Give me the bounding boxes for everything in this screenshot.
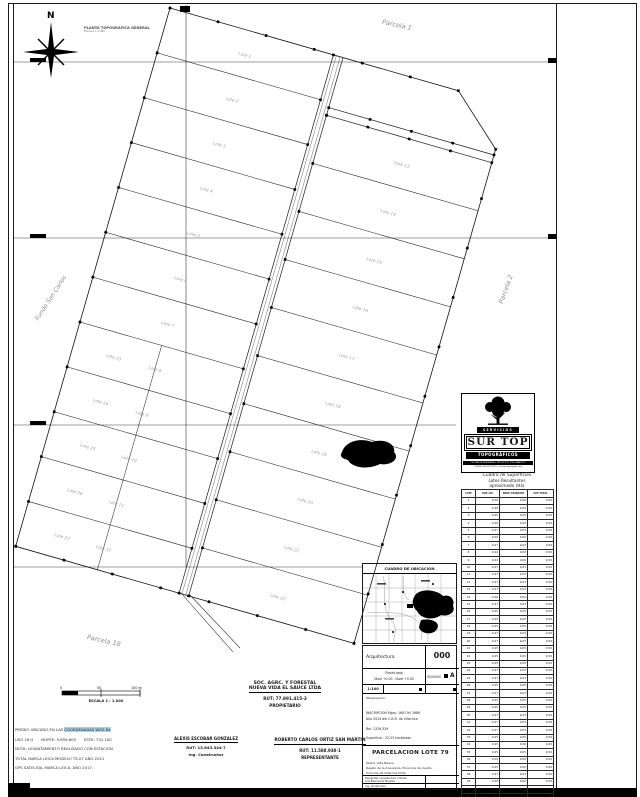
surface-table-row: 310.470.030.50 <box>462 719 554 726</box>
location-inset-title: CUADRO DE UBICACION <box>363 564 456 574</box>
lot-label: Lote 22 <box>270 592 287 601</box>
title-block: Arquitectura 000 Planta baja Nivel +0.00… <box>362 645 457 790</box>
titleblock-row-observacion: Observación: INSCRIPCION Fojas: 1691 Nº … <box>363 693 459 745</box>
logo-servicios: SERVICIOS <box>477 427 519 433</box>
titleblock-row-escala: 1:100 <box>363 684 459 693</box>
signer1-name: ALEXIS ESCOBAR GONZALEZ <box>174 736 238 743</box>
sector-value: Sector Vida Nueva <box>366 761 394 765</box>
scale-zero: 0 <box>60 686 62 690</box>
lot-label: Lote 19 <box>311 448 328 457</box>
plan-title-block: PLANTA TOPOGRÁFICA GENERAL ESCALA 1:1.00… <box>84 26 164 33</box>
titleblock-row-discipline: Arquitectura 000 <box>363 646 459 668</box>
surface-col-header: SUP TOTAL <box>528 490 554 498</box>
escala-mark-1 <box>419 688 422 691</box>
logo-topograficos: TOPOGRÁFICOS <box>466 452 530 459</box>
logo-line2: CORREO ELECTRONICO: surtop.ltda@gmail.co… <box>462 466 534 468</box>
location-inset-box: CUADRO DE UBICACION <box>362 563 457 644</box>
note-este: ESTE: 732.100 <box>84 737 112 742</box>
compass-star <box>23 22 79 78</box>
north-letter: N <box>47 11 55 21</box>
surface-table-row: 20.480.020.50 <box>462 505 554 512</box>
titleblock-row-credit1: Topografía / Arquitectura / Diseño Luis … <box>363 775 459 783</box>
owner-block: SOC. AGRC. Y FORESTAL NUEVA VIDA EL SAUC… <box>210 681 360 708</box>
plan-number: 000 <box>426 651 458 660</box>
lot-label: Lote 9 <box>135 410 149 419</box>
surface-col-header: SERV. TRANSITO <box>500 490 528 498</box>
lot-label: Lote 12 <box>95 544 112 553</box>
lot-label: Lote 16 <box>352 304 369 313</box>
surface-col-header: LOTE <box>462 490 476 498</box>
lot-label: Lote 24 <box>92 397 109 406</box>
escala-value: 1:100 <box>363 687 383 691</box>
surface-table-row: 240.470.030.50 <box>462 667 554 674</box>
pond-blob <box>341 440 396 467</box>
surtop-logo-box: SERVICIOS SUR TOP TOPOGRÁFICOS OFICINA D… <box>461 393 535 473</box>
surface-table-row: 100.470.030.50 <box>462 564 554 571</box>
surface-table-panel: Cuadro de Superficies Lotes Resultantes … <box>461 473 553 797</box>
rev-letter: A <box>450 672 455 679</box>
surface-table-row: 190.470.030.50 <box>462 631 554 638</box>
surface-table-row: 90.440.060.50 <box>462 557 554 564</box>
surface-table-row: 50.470.030.50 <box>462 527 554 534</box>
note-line-4: TOTAL MARCA LEICA MODELO TS-07 AÑO 2021 <box>15 756 185 761</box>
surface-table-row: 180.450.050.50 <box>462 623 554 630</box>
nivel-value: Nivel +0.00 - Nivel +0.00 <box>363 677 425 681</box>
owner-rut: RUT: 77.891.415-3 <box>210 696 360 701</box>
plano-value: Planta baja <box>363 671 425 675</box>
lot-label: Lote 27 <box>54 532 71 541</box>
surface-table-row: 250.470.030.50 <box>462 675 554 682</box>
location-inset-map <box>363 574 456 644</box>
surface-table-row: 60.500.000.50 <box>462 534 554 541</box>
surface-table-row: 10.500.060.56 <box>462 498 554 505</box>
tree-icon <box>462 394 533 427</box>
surface-table-row: 260.450.050.50 <box>462 682 554 689</box>
lot-label: Lote 14 <box>380 208 397 217</box>
discipline-value: Arquitectura <box>366 655 395 660</box>
lot-label: Lote 17 <box>338 352 355 361</box>
lot-label: Lote 23 <box>105 353 122 362</box>
surface-table-row: 320.470.030.50 <box>462 727 554 734</box>
surface-table-row: 330.450.050.50 <box>462 734 554 741</box>
surface-table-row: 110.470.030.50 <box>462 571 554 578</box>
rev-square <box>444 674 448 678</box>
superficie-value: Superficie : 22,03 hectáreas <box>366 736 411 740</box>
scale-mid: 50 <box>97 686 101 690</box>
lot-label: Lote 5 <box>187 230 201 239</box>
titleblock-row-plano: Planta baja Nivel +0.00 - Nivel +0.00 00… <box>363 668 459 684</box>
surface-table-row: 210.450.050.50 <box>462 645 554 652</box>
surface-table-row: 220.450.050.50 <box>462 653 554 660</box>
inset-rivers <box>367 576 422 644</box>
rol-value: Rol: 1339-329 <box>366 727 388 731</box>
inscripcion-line1: INSCRIPCION Fojas: 1691 Nº 1689 <box>366 711 420 715</box>
surface-table-row: 270.470.030.50 <box>462 690 554 697</box>
lot-label: Lote 3 <box>212 140 226 149</box>
escala-mark-2 <box>453 688 456 691</box>
lot-label: Lote 7 <box>161 320 175 329</box>
note-norte: NORTE: 5.659.600 <box>41 737 76 742</box>
signer2-name: ROBERTO CARLOS ORTIZ SAN MARTIN <box>274 738 365 745</box>
surface-table-row: 290.450.050.50 <box>462 704 554 711</box>
parcel-subdivision-drawing: Lote 1Lote 2Lote 3Lote 4Lote 5Lote 6Lote… <box>14 6 510 645</box>
fecha-value: 00/00/00 <box>427 675 441 679</box>
note-line-1-prefix: PREDIO UBICADO EN LAS <box>15 727 64 732</box>
scale-end: 100 m <box>131 686 143 690</box>
signer1-role: Ing. Constructor <box>158 752 254 757</box>
owner-company-line2: NUEVA VIDA EL SAUCE LTDA <box>249 686 321 693</box>
surface-table-row: 370.450.050.50 <box>462 764 554 771</box>
surface-table-row: 380.470.030.50 <box>462 771 554 778</box>
surface-table-row: 360.500.000.50 <box>462 756 554 763</box>
titleblock-row-location: Sector Vida Nueva Región de la Araucanía… <box>363 759 459 775</box>
surface-table-title3: aproximado (Há) <box>461 483 553 488</box>
surface-table-row: 140.480.020.50 <box>462 594 554 601</box>
north-arrow: N <box>23 11 79 78</box>
inscripcion-line2: Año 2024 del C.B.R. de Villarrica <box>366 717 418 721</box>
lot-label: Lote 1 <box>238 51 252 60</box>
surface-table-row: 40.460.040.50 <box>462 520 554 527</box>
lot-label: Lote 10 <box>121 454 138 463</box>
surface-table-row: 280.450.050.50 <box>462 697 554 704</box>
region-value: Región de la Araucanía, Provincia de Cau… <box>366 766 433 770</box>
logo-line1: OFICINA DE INGENIERIA Y PROYECTOS TOPOGR… <box>463 461 533 466</box>
surface-table-row: 200.470.030.50 <box>462 638 554 645</box>
surface-table-row: 300.470.030.50 <box>462 712 554 719</box>
note-huso: USO 18 H <box>15 737 33 742</box>
signer1-rut: RUT: 13.843.344-7 <box>158 745 254 750</box>
lot-label: Lote 4 <box>199 185 213 194</box>
lot-label: Lote 18 <box>325 400 342 409</box>
lot-label: Lote 8 <box>148 365 162 374</box>
surface-table-row: 400.470.030.50 <box>462 786 554 793</box>
surface-table-row: 130.470.030.50 <box>462 586 554 593</box>
note-line-1: PREDIO UBICADO EN LAS COORDENADAS WGS 84 <box>15 727 185 732</box>
lot-label: Lote 2 <box>225 96 239 105</box>
plan-subtitle: ESCALA 1:1.000 <box>84 30 164 33</box>
surface-table-row: 170.450.050.50 <box>462 616 554 623</box>
lot-label: Lote 25 <box>80 442 97 451</box>
surface-table-row: 390.480.020.50 <box>462 778 554 785</box>
lot-label: Lote 20 <box>297 496 314 505</box>
scale-caption: ESCALA 1 : 1.000 <box>68 699 144 703</box>
logo-name: SUR TOP <box>466 436 530 450</box>
lot-label: Lote 13 <box>394 160 411 169</box>
signer-engineer-block: ALEXIS ESCOBAR GONZALEZ RUT: 13.843.344-… <box>158 736 254 757</box>
observacion-label: Observación: <box>366 696 386 700</box>
surface-table-row: 410.450.050.50 <box>462 793 554 797</box>
titleblock-row-credit2: Ing. Constructor Alexis Escobar Gonzalez <box>363 783 459 791</box>
surface-table-row: 80.440.060.50 <box>462 549 554 556</box>
lot-label: Lote 15 <box>366 256 383 265</box>
note-line-5: GPS SATELITAL MARCA LEICA. AÑO 2017. <box>15 765 185 770</box>
lot-label: Lote 11 <box>108 499 125 508</box>
surface-table-row: 120.470.030.50 <box>462 579 554 586</box>
surface-table-row: 160.450.050.50 <box>462 608 554 615</box>
surface-table: LOTESUP. útilSERV. TRANSITOSUP TOTAL 10.… <box>461 489 554 797</box>
comuna-value: Comuna de Villarrica,Chile <box>366 771 406 775</box>
surface-table-row: 350.450.050.50 <box>462 749 554 756</box>
lot-label: Lote 26 <box>67 487 84 496</box>
surface-table-row: 230.450.050.50 <box>462 660 554 667</box>
surface-table-row: 70.470.030.50 <box>462 542 554 549</box>
lot-label: Lote 21 <box>283 544 300 553</box>
surface-table-row: 340.450.000.45 <box>462 741 554 748</box>
surface-table-header-row: LOTESUP. útilSERV. TRANSITOSUP TOTAL <box>462 490 554 498</box>
surface-col-header: SUP. útil <box>476 490 500 498</box>
credit2-name: Alexis Escobar Gonzalez <box>365 788 396 791</box>
owner-role: PROPIETARIO <box>210 703 360 708</box>
logo-name-frame: SUR TOP <box>464 434 532 451</box>
surface-table-row: 30.450.050.50 <box>462 512 554 519</box>
surface-table-row: 150.470.030.50 <box>462 601 554 608</box>
scale-bar: 0 50 100 m <box>60 686 143 697</box>
note-line-1-highlight: COORDENADAS WGS 84 <box>64 727 110 732</box>
plan-sheet: Lote 1Lote 2Lote 3Lote 4Lote 5Lote 6Lote… <box>0 0 640 797</box>
project-title: PARCELACION LOTE 79 <box>363 750 458 756</box>
titleblock-row-project: PARCELACION LOTE 79 <box>363 745 459 759</box>
